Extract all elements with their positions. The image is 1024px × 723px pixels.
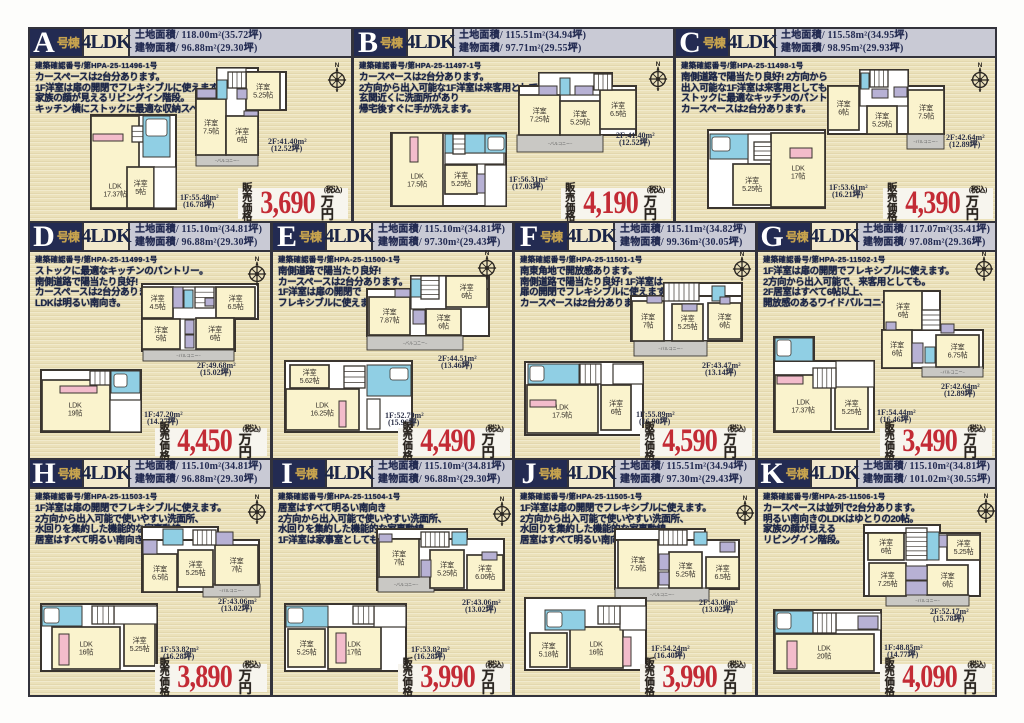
svg-text:5.25帖: 5.25帖 (676, 570, 696, 579)
svg-text:7.25帖: 7.25帖 (878, 579, 898, 588)
svg-text:6帖: 6帖 (838, 108, 849, 117)
svg-text:17.5帖: 17.5帖 (552, 411, 572, 420)
svg-text:5.25帖: 5.25帖 (954, 547, 974, 556)
svg-text:6帖: 6帖 (611, 407, 622, 416)
svg-text:6帖: 6帖 (461, 291, 472, 300)
svg-text:5.25帖: 5.25帖 (872, 120, 892, 129)
svg-text:16帖: 16帖 (589, 648, 603, 657)
svg-text:7.5帖: 7.5帖 (918, 112, 934, 121)
svg-text:5帖: 5帖 (156, 334, 167, 343)
svg-text:7帖: 7帖 (394, 558, 405, 567)
svg-text:7.25帖: 7.25帖 (530, 115, 550, 124)
svg-text:~バルコニー~: ~バルコニー~ (940, 370, 965, 375)
svg-text:6帖: 6帖 (210, 333, 221, 342)
svg-text:19帖: 19帖 (68, 409, 82, 418)
svg-text:16帖: 16帖 (79, 648, 93, 657)
svg-text:5.25帖: 5.25帖 (186, 568, 206, 577)
svg-text:7帖: 7帖 (231, 565, 242, 574)
svg-text:6.5帖: 6.5帖 (228, 302, 244, 311)
svg-text:6.75帖: 6.75帖 (948, 351, 968, 360)
svg-text:6.5帖: 6.5帖 (152, 573, 168, 582)
svg-text:5.25帖: 5.25帖 (678, 322, 698, 331)
svg-text:5.62帖: 5.62帖 (300, 376, 320, 385)
svg-text:17帖: 17帖 (347, 648, 361, 657)
svg-text:6帖: 6帖 (892, 349, 903, 358)
svg-text:5.25帖: 5.25帖 (842, 407, 862, 416)
svg-text:~バルコニー~: ~バルコニー~ (215, 158, 240, 163)
svg-text:~バルコニー~: ~バルコニー~ (915, 598, 940, 603)
svg-text:~バルコニー~: ~バルコニー~ (403, 341, 428, 346)
svg-text:6.5帖: 6.5帖 (715, 572, 731, 581)
svg-text:5.25帖: 5.25帖 (742, 184, 762, 193)
svg-text:~バルコニー~: ~バルコニー~ (176, 353, 201, 358)
svg-text:5.18帖: 5.18帖 (539, 650, 559, 659)
svg-text:5.25帖: 5.25帖 (437, 569, 457, 578)
svg-text:17.37帖: 17.37帖 (791, 406, 814, 415)
svg-text:6.5帖: 6.5帖 (610, 109, 626, 118)
svg-text:~バルコニー~: ~バルコニー~ (913, 139, 938, 144)
svg-text:6帖: 6帖 (898, 310, 909, 319)
svg-text:7.5帖: 7.5帖 (203, 127, 219, 136)
svg-text:16.25帖: 16.25帖 (310, 409, 333, 418)
svg-text:6帖: 6帖 (881, 546, 892, 555)
svg-text:~バルコニー~: ~バルコニー~ (394, 582, 419, 587)
svg-text:6帖: 6帖 (942, 580, 953, 589)
svg-text:~バルコニー~: ~バルコニー~ (219, 588, 244, 593)
svg-text:17.37帖: 17.37帖 (103, 190, 126, 199)
svg-text:7帖: 7帖 (643, 321, 654, 330)
svg-text:6帖: 6帖 (237, 135, 248, 144)
svg-text:~バルコニー~: ~バルコニー~ (650, 592, 675, 597)
svg-text:7.87帖: 7.87帖 (380, 316, 400, 325)
svg-text:4.5帖: 4.5帖 (150, 302, 166, 311)
svg-text:6帖: 6帖 (719, 321, 730, 330)
svg-text:5.25帖: 5.25帖 (130, 644, 150, 653)
svg-text:5帖: 5帖 (135, 187, 146, 196)
svg-text:~バルコニー~: ~バルコニー~ (548, 141, 573, 146)
svg-text:17帖: 17帖 (791, 172, 805, 181)
svg-text:5.25帖: 5.25帖 (451, 179, 471, 188)
svg-text:~バルコニー~: ~バルコニー~ (658, 346, 683, 351)
svg-text:5.25帖: 5.25帖 (570, 118, 590, 127)
svg-text:7.5帖: 7.5帖 (630, 564, 646, 573)
svg-text:6.06帖: 6.06帖 (475, 572, 495, 581)
svg-text:20帖: 20帖 (817, 652, 831, 661)
svg-text:5.25帖: 5.25帖 (253, 91, 273, 100)
svg-text:17.5帖: 17.5帖 (407, 180, 427, 189)
svg-text:6帖: 6帖 (438, 322, 449, 331)
svg-text:5.25帖: 5.25帖 (297, 648, 317, 657)
